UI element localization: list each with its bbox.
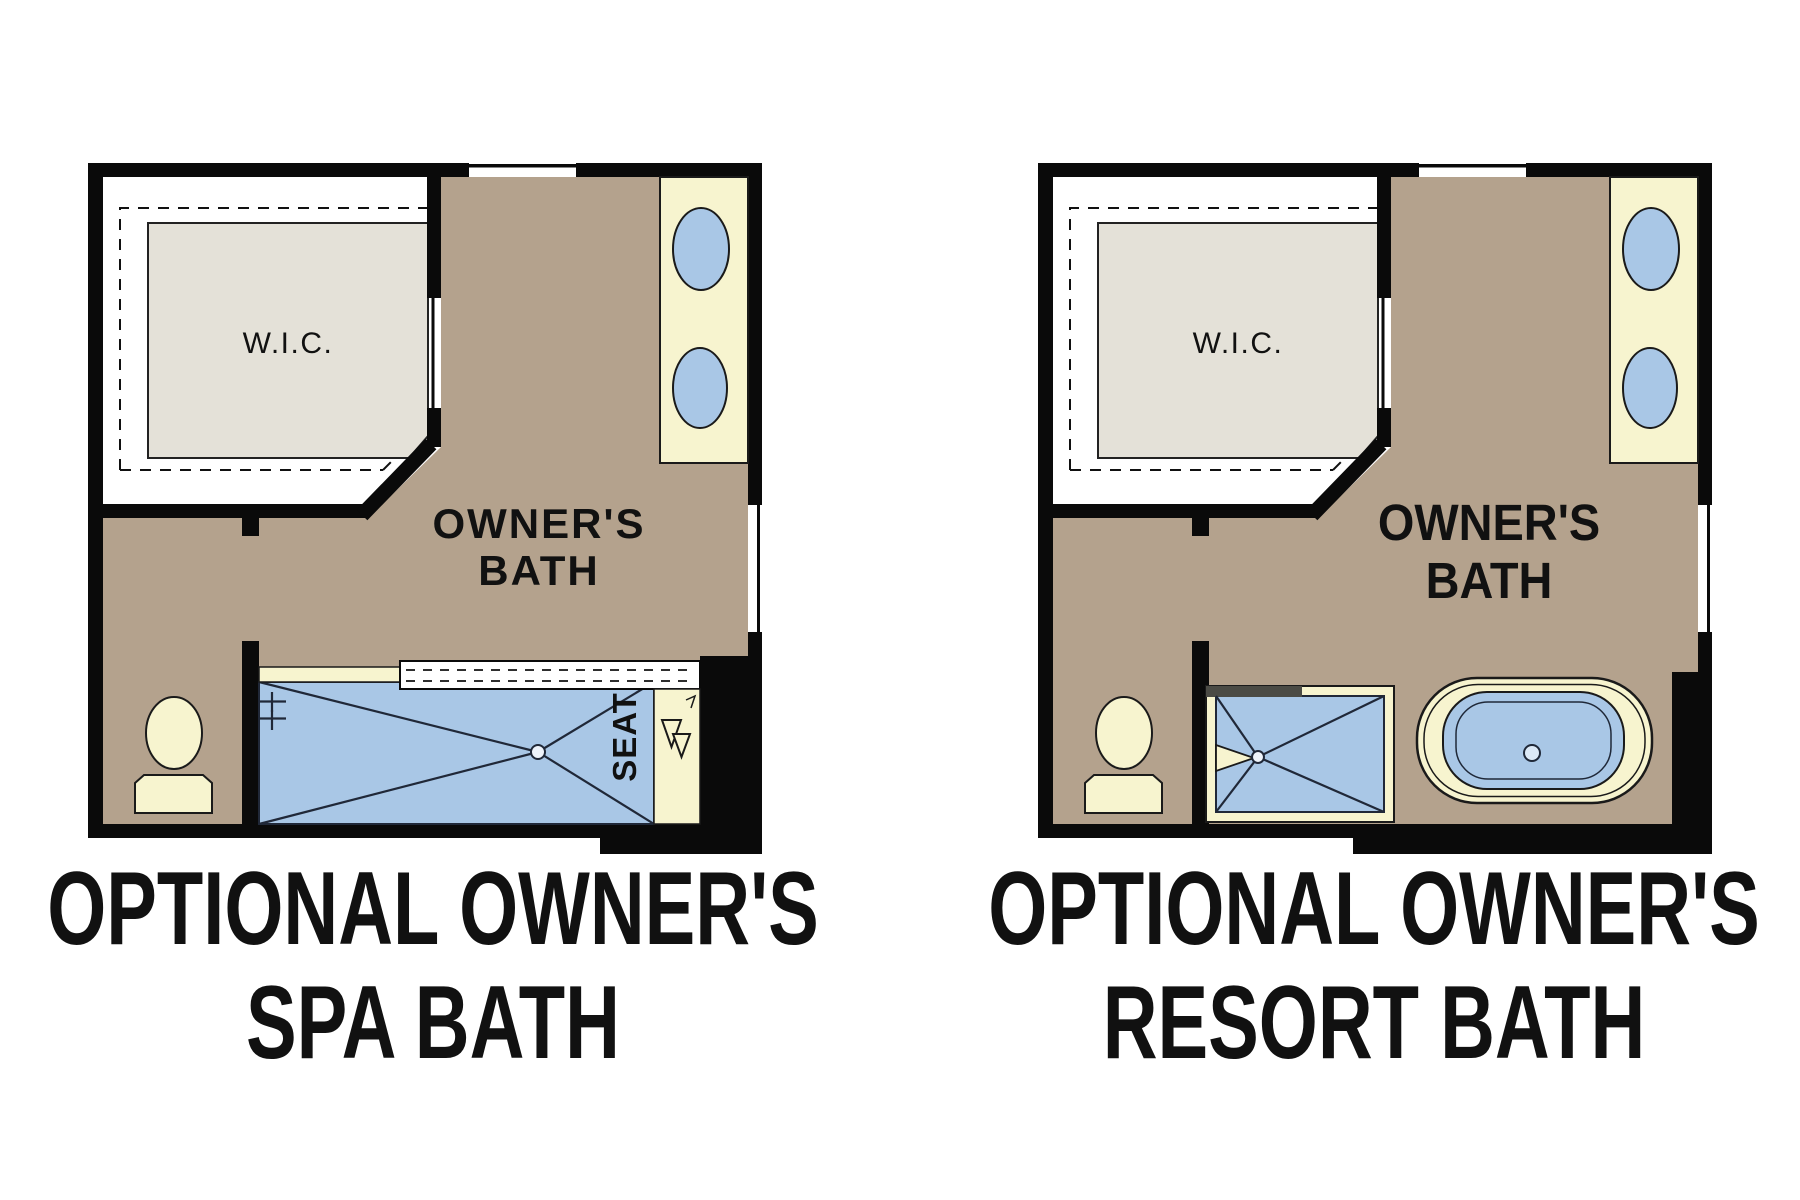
shower-curb — [259, 667, 400, 682]
shower-seat-ledge — [654, 689, 700, 824]
floor-plan-canvas: W.I.C. OWNER'S BATH SEAT OPTIONAL OWNER'… — [0, 0, 1800, 1200]
tub-drain — [1524, 745, 1540, 761]
wall — [1672, 672, 1712, 838]
shower-seat-label: SEAT — [606, 692, 643, 782]
plan-caption-line1: OPTIONAL OWNER'S — [988, 851, 1760, 966]
closet-label: W.I.C. — [1193, 327, 1284, 360]
plan-caption-line2: SPA BATH — [246, 965, 620, 1080]
spa-bath-plan: W.I.C. OWNER'S BATH SEAT OPTIONAL OWNER'… — [47, 163, 819, 1081]
shower-pan — [259, 682, 654, 824]
shower-glass-panel — [400, 661, 700, 689]
wall — [700, 656, 762, 838]
closet-label: W.I.C. — [243, 327, 334, 360]
plan-caption-line1: OPTIONAL OWNER'S — [47, 851, 819, 966]
plan-caption-line2: RESORT BATH — [1103, 965, 1646, 1080]
shower-drain — [531, 745, 545, 759]
floor-plan-figure: W.I.C. OWNER'S BATH SEAT OPTIONAL OWNER'… — [0, 0, 1800, 1200]
room-label-line2: BATH — [1426, 553, 1553, 609]
shower-door-header — [1206, 686, 1302, 697]
room-label-line2: BATH — [478, 547, 600, 594]
room-label-line1: OWNER'S — [1378, 495, 1600, 551]
room-label-line1: OWNER'S — [433, 500, 646, 547]
resort-bath-plan: W.I.C. OWNER'S BATH OPTIONAL OWNER'S RES… — [988, 163, 1760, 1081]
shower-drain — [1252, 751, 1264, 763]
